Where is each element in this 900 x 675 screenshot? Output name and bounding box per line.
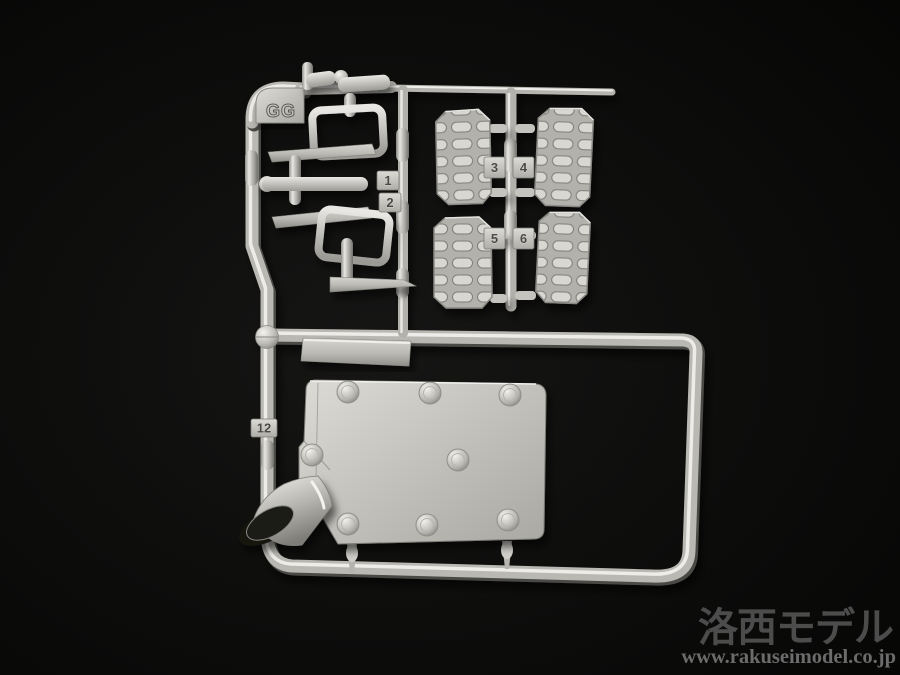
watermark-logo: 洛西モデル (698, 605, 893, 650)
runner-ball-joint (256, 326, 279, 349)
part-tag-12: 12 (251, 419, 277, 437)
cover-plate-part (299, 380, 546, 544)
step-plate-2 (534, 107, 593, 207)
step-plate-3 (434, 217, 492, 308)
watermark: 洛西モデル www.rakuseimodel.co.jp (681, 605, 896, 668)
part-tag-5: 5 (484, 228, 505, 249)
gate-tab: GG (256, 88, 304, 123)
part-tag-2: 2 (379, 193, 401, 212)
photo-canvas: GG (0, 0, 900, 675)
svg-text:12: 12 (257, 420, 271, 435)
svg-text:5: 5 (491, 231, 498, 246)
part-tag-4: 4 (513, 157, 534, 178)
svg-text:6: 6 (520, 231, 527, 246)
part-tag-1: 1 (377, 171, 399, 190)
strip-bar-part (301, 338, 411, 366)
part-tag-3: 3 (484, 157, 505, 178)
gate-label: GG (266, 101, 296, 121)
step-plate-4 (535, 211, 590, 304)
watermark-url: www.rakuseimodel.co.jp (681, 646, 896, 668)
sprue-photo: GG (0, 0, 900, 675)
svg-text:3: 3 (491, 160, 498, 175)
step-plate-1 (434, 109, 492, 205)
part-tag-6: 6 (513, 228, 534, 249)
svg-text:2: 2 (386, 195, 393, 210)
mirror-arm-rod (262, 177, 368, 191)
svg-text:1: 1 (384, 173, 391, 188)
svg-text:4: 4 (520, 160, 528, 175)
